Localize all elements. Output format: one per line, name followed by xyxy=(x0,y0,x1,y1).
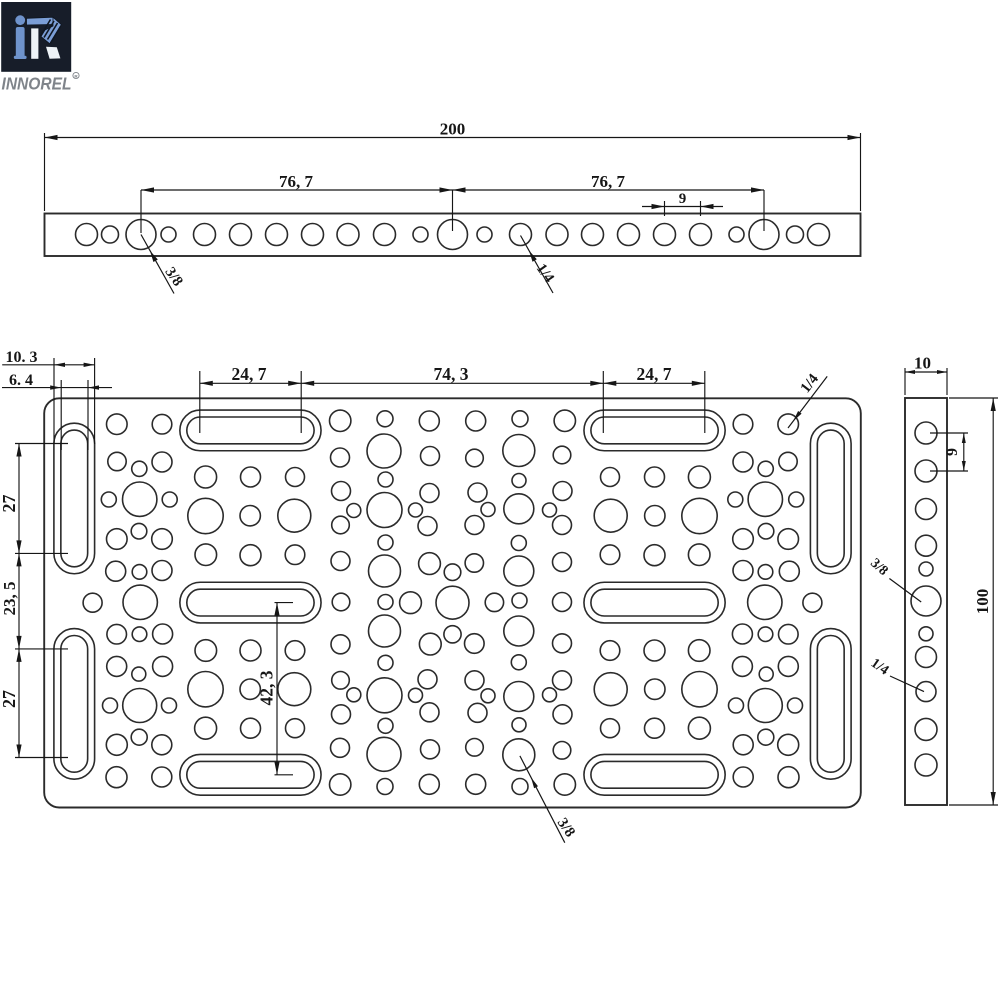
svg-text:24, 7: 24, 7 xyxy=(637,364,672,384)
svg-text:76, 7: 76, 7 xyxy=(591,172,626,191)
svg-text:200: 200 xyxy=(440,120,466,139)
svg-text:6. 4: 6. 4 xyxy=(9,372,33,389)
svg-text:27: 27 xyxy=(0,495,19,513)
svg-text:74, 3: 74, 3 xyxy=(434,364,469,384)
svg-text:100: 100 xyxy=(973,589,992,615)
svg-text:9: 9 xyxy=(944,448,961,456)
svg-text:10: 10 xyxy=(914,354,931,373)
svg-text:76, 7: 76, 7 xyxy=(279,172,314,191)
svg-text:42, 3: 42, 3 xyxy=(257,670,277,705)
svg-text:23, 5: 23, 5 xyxy=(0,582,19,616)
svg-text:INNOREL: INNOREL xyxy=(2,74,72,94)
svg-text:10. 3: 10. 3 xyxy=(6,349,38,366)
svg-text:24, 7: 24, 7 xyxy=(232,364,267,384)
svg-text:9: 9 xyxy=(679,191,687,207)
svg-text:27: 27 xyxy=(0,690,19,708)
